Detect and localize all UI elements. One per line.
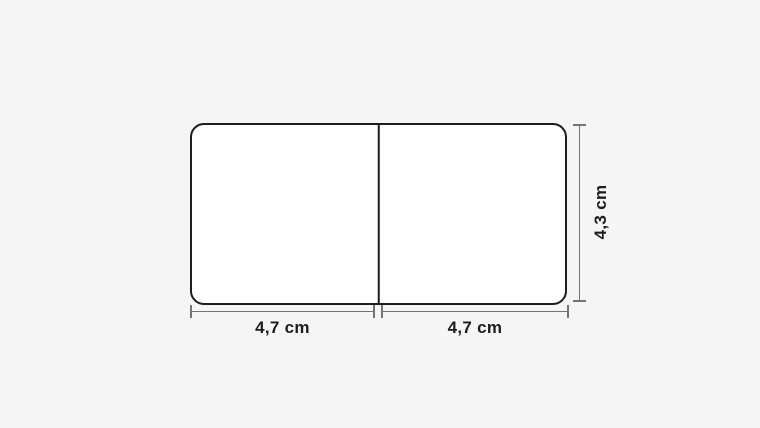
label-right-panel	[379, 125, 566, 303]
dimension-line	[190, 311, 375, 313]
diagram-canvas: 4,7 cm 4,7 cm 4,3 cm	[0, 0, 760, 428]
dimension-line	[381, 311, 569, 313]
dimension-line	[579, 124, 581, 302]
dimension-tick-end	[573, 300, 586, 302]
label-outline-rect	[190, 123, 567, 305]
label-left-panel	[192, 125, 379, 303]
left-width-dimension-label: 4,7 cm	[190, 318, 375, 338]
width-dimension-line-right	[381, 305, 569, 318]
dimension-tick-end	[373, 305, 375, 318]
height-dimension-label: 4,3 cm	[591, 185, 611, 240]
fold-divider-line	[377, 125, 380, 303]
right-width-dimension-label: 4,7 cm	[381, 318, 569, 338]
height-dimension-line	[573, 124, 586, 302]
width-dimension-line-left	[190, 305, 375, 318]
dimension-tick-end	[567, 305, 569, 318]
